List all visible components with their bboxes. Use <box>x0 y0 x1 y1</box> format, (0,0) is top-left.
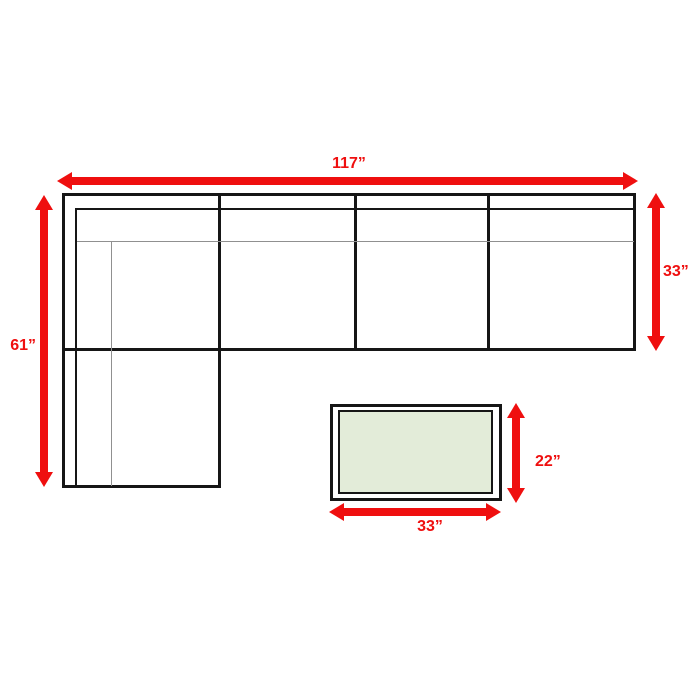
chaise-cushion-seam <box>111 241 112 486</box>
sofa-front-edge <box>62 348 636 351</box>
arrow-head-down-icon <box>507 488 525 503</box>
coffee-table <box>330 404 502 501</box>
sofa-outline-top <box>62 193 636 196</box>
sofa-depth-label: 33” <box>663 264 699 280</box>
arrow-head-right-icon <box>486 503 501 521</box>
arrow-head-down-icon <box>647 336 665 351</box>
seat-divider-3 <box>487 193 490 351</box>
sofa-width-label: 117” <box>317 156 381 172</box>
sofa-outline-right <box>633 193 636 351</box>
table-depth-dimension-arrow <box>507 403 525 503</box>
chaise-right-divider <box>218 193 221 488</box>
seat-divider-2 <box>354 193 357 351</box>
chaise-bottom-edge <box>62 485 221 488</box>
sofa-width-dimension-arrow <box>57 172 638 190</box>
furniture-dimension-diagram: 117” 61” 33” 22” 33” <box>0 0 700 700</box>
back-cushion-seam <box>77 241 634 242</box>
arrow-head-down-icon <box>35 472 53 487</box>
left-armrest-inner-line <box>75 208 77 488</box>
chaise-depth-dimension-arrow <box>35 195 53 487</box>
table-width-label: 33” <box>400 519 460 535</box>
sofa-back-inner-line <box>75 208 636 210</box>
coffee-table-top <box>338 410 493 494</box>
sofa-outline-left <box>62 193 65 488</box>
table-depth-label: 22” <box>535 454 571 470</box>
chaise-depth-label: 61” <box>4 338 36 354</box>
arrow-head-right-icon <box>623 172 638 190</box>
